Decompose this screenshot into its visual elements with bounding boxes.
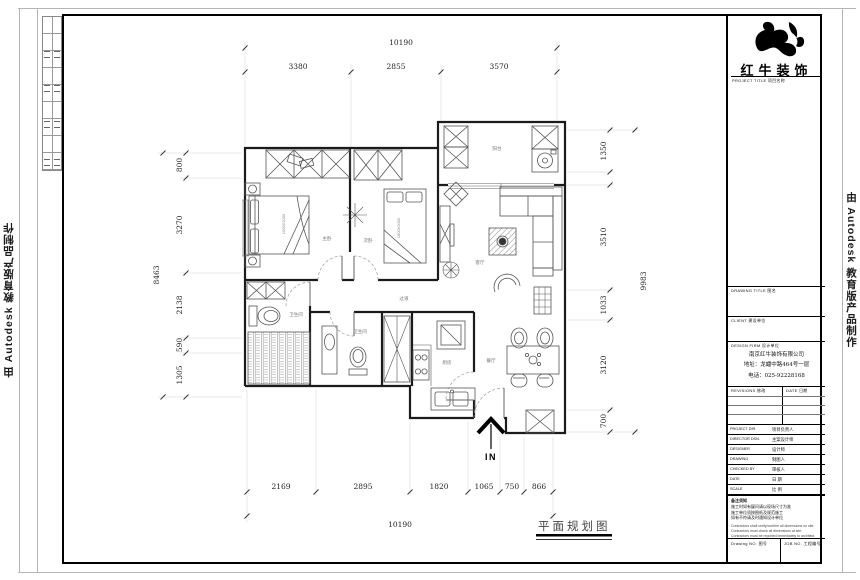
row-cn: 设计师 bbox=[772, 447, 785, 453]
row-en: SCALE bbox=[730, 487, 742, 491]
dim-left-4: 590 bbox=[175, 338, 184, 353]
second-bed bbox=[384, 189, 426, 263]
walls bbox=[245, 122, 565, 433]
coffee-table bbox=[489, 228, 516, 255]
second-wardrobe bbox=[354, 150, 402, 180]
dim-left-2: 3270 bbox=[175, 215, 184, 234]
client-section bbox=[728, 316, 825, 317]
row-en: DRAWING bbox=[730, 457, 748, 461]
notes-cn-3: 如有不符请及时通知设计单位 bbox=[731, 515, 825, 521]
outer-wall-left bbox=[245, 386, 474, 418]
dim-top-overall: 10190 bbox=[389, 38, 413, 47]
dim-right-overall: 9983 bbox=[639, 271, 648, 290]
drawing-no-label: Drawing NO. 图号 bbox=[731, 541, 767, 547]
dim-bottom-5: 750 bbox=[505, 482, 520, 491]
room-label-hall: 过道 bbox=[399, 295, 409, 302]
dim-bottom-2: 2895 bbox=[353, 482, 372, 491]
dim-left-5: 1305 bbox=[175, 365, 184, 384]
entry-label: IN bbox=[485, 452, 497, 462]
dim-top-1: 3380 bbox=[288, 62, 307, 71]
room-label-second: 次卧 bbox=[363, 237, 373, 244]
firm-address: 地址：龙蟠中路464号一层 bbox=[728, 360, 825, 370]
plant bbox=[443, 262, 459, 278]
row-drawing: DRAWING 制图人 bbox=[728, 454, 825, 464]
master-wardrobe bbox=[266, 150, 350, 178]
title-block: 红牛装饰 PROJECT TITLE 项目名称 DRAWING TITLE 图名… bbox=[726, 14, 825, 564]
dim-right-3: 1033 bbox=[599, 295, 608, 314]
notes-section: 备注须知 施工时如有疑问请以现场尺寸为准 施工单位须按图纸及规范施工 如有不符请… bbox=[728, 494, 825, 538]
rev-row-line-1 bbox=[728, 396, 825, 397]
rev-row-line-2 bbox=[728, 405, 825, 406]
room-label-bath1: 卫生间 bbox=[289, 311, 303, 318]
row-en: CHECKED BY bbox=[730, 467, 755, 471]
row-en: DESIGNER bbox=[730, 447, 750, 451]
dim-right-1: 1350 bbox=[599, 141, 608, 160]
brand-rule bbox=[731, 76, 822, 77]
bed-size-second: 1800X2000 bbox=[396, 217, 401, 238]
row-cn: 制图人 bbox=[772, 457, 785, 463]
tv-cabinet bbox=[440, 182, 468, 262]
dim-left-overall: 8463 bbox=[152, 265, 161, 284]
dim-bottom-1: 2169 bbox=[271, 482, 290, 491]
hall-cabinet bbox=[384, 316, 410, 382]
row-en: DATE bbox=[730, 477, 740, 481]
master-window bbox=[242, 200, 249, 256]
balcony-cabinets bbox=[444, 126, 468, 168]
drawing-title-label: DRAWING TITLE 图名 bbox=[731, 288, 776, 294]
dim-bottom-6: 866 bbox=[532, 482, 547, 491]
dim-right-2: 3510 bbox=[599, 227, 608, 246]
column-box bbox=[526, 410, 554, 433]
row-cn: 审核人 bbox=[772, 467, 785, 473]
room-label-master: 主卧 bbox=[322, 235, 332, 242]
room-label-dining: 餐厅 bbox=[486, 357, 496, 364]
extension-lines bbox=[158, 42, 640, 522]
balcony-slider-window bbox=[448, 184, 554, 189]
revisions-label: REVISIONS 修改 bbox=[731, 388, 766, 394]
dim-right-5: 700 bbox=[599, 414, 608, 429]
dim-top-2: 2855 bbox=[386, 62, 405, 71]
row-cn: 比 例 bbox=[772, 487, 782, 493]
plan-title: 平面规划图 bbox=[536, 519, 612, 540]
dimensions: 10190 3380 2855 3570 2169 2895 1820 1065… bbox=[152, 38, 648, 529]
row-date: DATE 日 期 bbox=[728, 474, 825, 484]
dim-top-3: 3570 bbox=[489, 62, 508, 71]
design-firm-label: DESIGN FIRM 设计单位 bbox=[731, 343, 779, 349]
project-title-label: PROJECT TITLE 项目名称 bbox=[732, 78, 785, 84]
master-bed bbox=[249, 196, 309, 254]
dining-set bbox=[507, 328, 559, 387]
rev-row-line-3 bbox=[728, 414, 825, 415]
design-firm-section bbox=[728, 341, 825, 342]
row-en: DIRECTOR DSN. bbox=[730, 437, 760, 441]
client-label: CLIENT 建设单位 bbox=[731, 318, 766, 324]
dim-bottom-overall: 10190 bbox=[388, 520, 412, 529]
firm-phone: 电话：025-92228168 bbox=[728, 371, 825, 381]
bath1-fixtures bbox=[247, 282, 310, 384]
row-checked: CHECKED BY 审核人 bbox=[728, 464, 825, 474]
row-cn: 主案设计师 bbox=[772, 437, 793, 443]
radiator bbox=[534, 287, 551, 314]
firm-name: 南京红牛装饰有限公司 bbox=[728, 350, 825, 360]
room-label-kitchen: 厨房 bbox=[442, 359, 452, 366]
row-designer: DESIGNER 设计师 bbox=[728, 444, 825, 454]
number-divider bbox=[780, 538, 781, 564]
row-cn: 日 期 bbox=[772, 477, 782, 483]
ceiling-light-symbol bbox=[343, 203, 367, 227]
dim-bottom-4: 1065 bbox=[474, 482, 493, 491]
kitchen-fixtures bbox=[413, 321, 475, 410]
dim-left-3: 2138 bbox=[175, 295, 184, 314]
bull-logo bbox=[728, 18, 825, 60]
job-no-label: JOB NO. 工程编号 bbox=[784, 541, 821, 547]
room-label-bath2: 卫生间 bbox=[353, 328, 367, 335]
washing-machine bbox=[532, 126, 558, 172]
row-cn: 项目负责人 bbox=[772, 427, 793, 433]
design-firm-info: 南京红牛装饰有限公司 地址：龙蟠中路464号一层 电话：025-92228168 bbox=[728, 350, 825, 381]
room-label-living: 客厅 bbox=[475, 259, 485, 266]
plan-title-text: 平面规划图 bbox=[538, 519, 611, 533]
dim-left-1: 800 bbox=[175, 158, 184, 173]
row-en: PROJECT DIR. bbox=[730, 427, 756, 431]
number-section bbox=[728, 538, 825, 539]
revisions-date-label: DATE 日期 bbox=[786, 388, 808, 394]
room-label-balcony: 阳台 bbox=[492, 145, 502, 152]
dim-bottom-3: 1820 bbox=[429, 482, 448, 491]
dim-right-4: 3120 bbox=[599, 355, 608, 374]
row-scale: SCALE 比 例 bbox=[728, 484, 825, 494]
row-director: DIRECTOR DSN. 主案设计师 bbox=[728, 434, 825, 444]
drawing-title-section bbox=[728, 286, 825, 287]
lounge-chair bbox=[494, 274, 520, 292]
bed-size-master: 1500X2000 bbox=[281, 213, 286, 234]
row-project-dir: PROJECT DIR. 项目负责人 bbox=[728, 424, 825, 434]
